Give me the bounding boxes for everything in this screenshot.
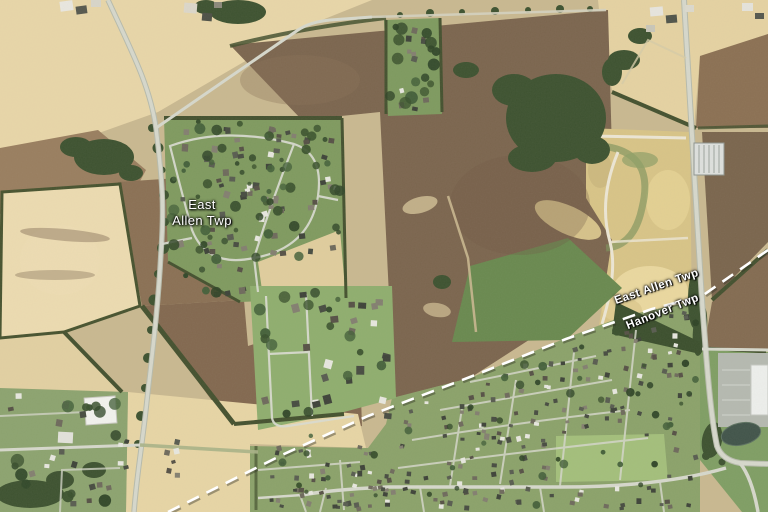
aerial-imagery-layer <box>0 0 768 512</box>
aerial-map[interactable]: East Allen Twp East Allen Twp Hanover Tw… <box>0 0 768 512</box>
photo-grain-overlay <box>0 0 768 512</box>
